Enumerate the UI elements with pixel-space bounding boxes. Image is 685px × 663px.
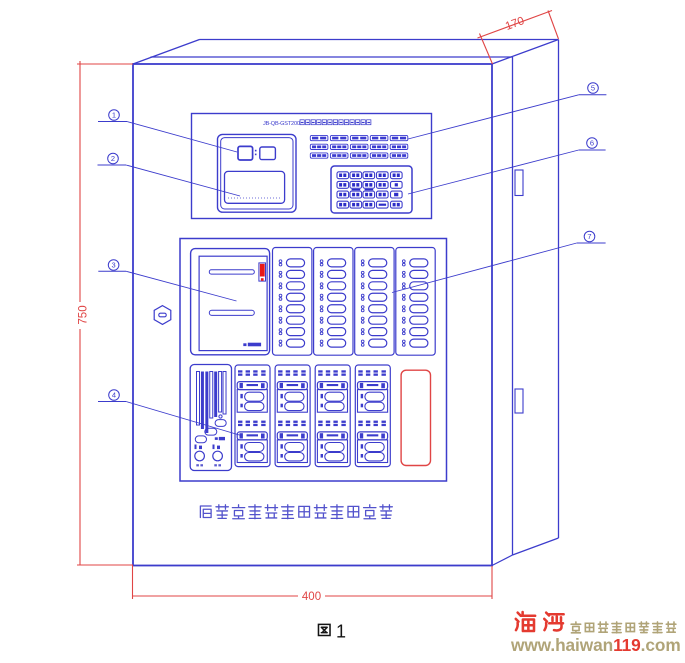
svg-text:1: 1 [112,111,116,120]
svg-text:1: 1 [336,622,346,642]
svg-text:5: 5 [591,84,595,93]
svg-text:www.haiwan119.com: www.haiwan119.com [510,635,681,655]
svg-text:2: 2 [111,154,115,163]
svg-text:3: 3 [112,261,116,270]
svg-text:4: 4 [112,391,116,400]
svg-text:JB-QB-GST200: JB-QB-GST200 [263,121,300,127]
svg-text:400: 400 [302,591,321,603]
svg-text:750: 750 [78,305,90,324]
svg-text:7: 7 [587,232,591,241]
svg-text:6: 6 [590,139,594,148]
